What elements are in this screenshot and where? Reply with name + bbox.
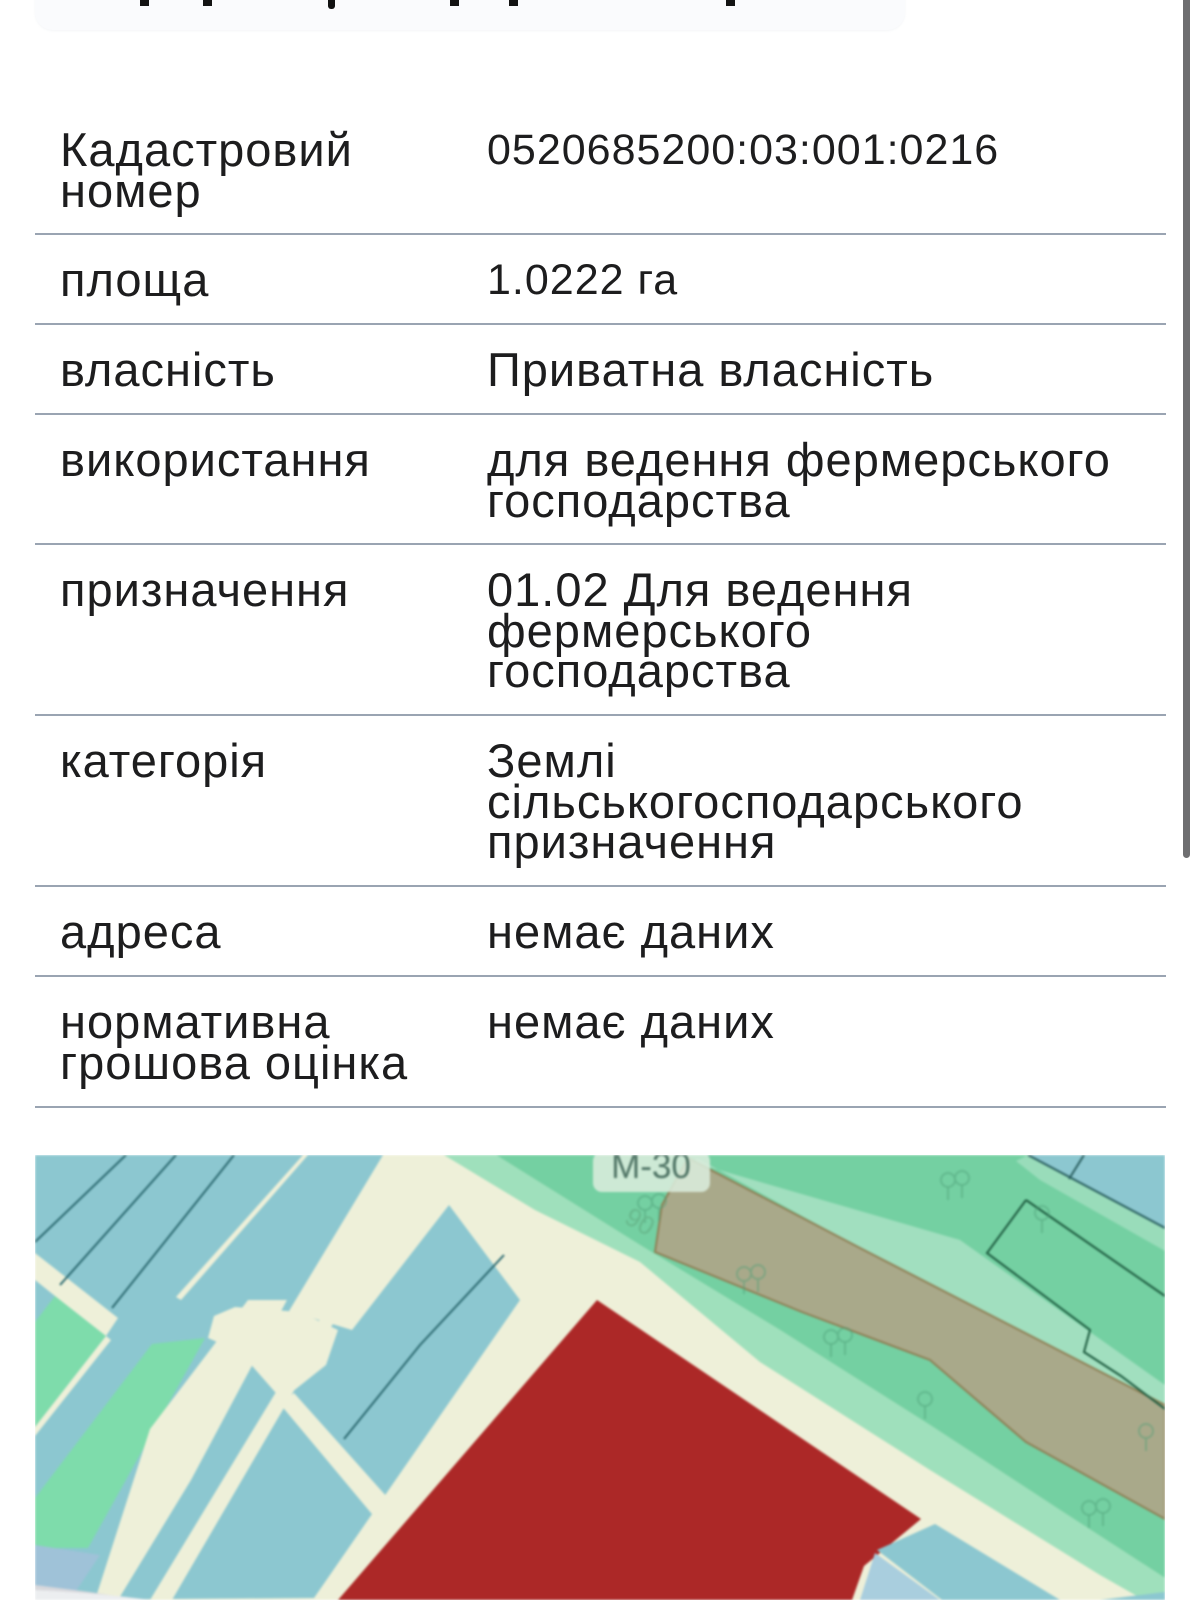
svg-text:М-30: М-30 (611, 1155, 691, 1186)
